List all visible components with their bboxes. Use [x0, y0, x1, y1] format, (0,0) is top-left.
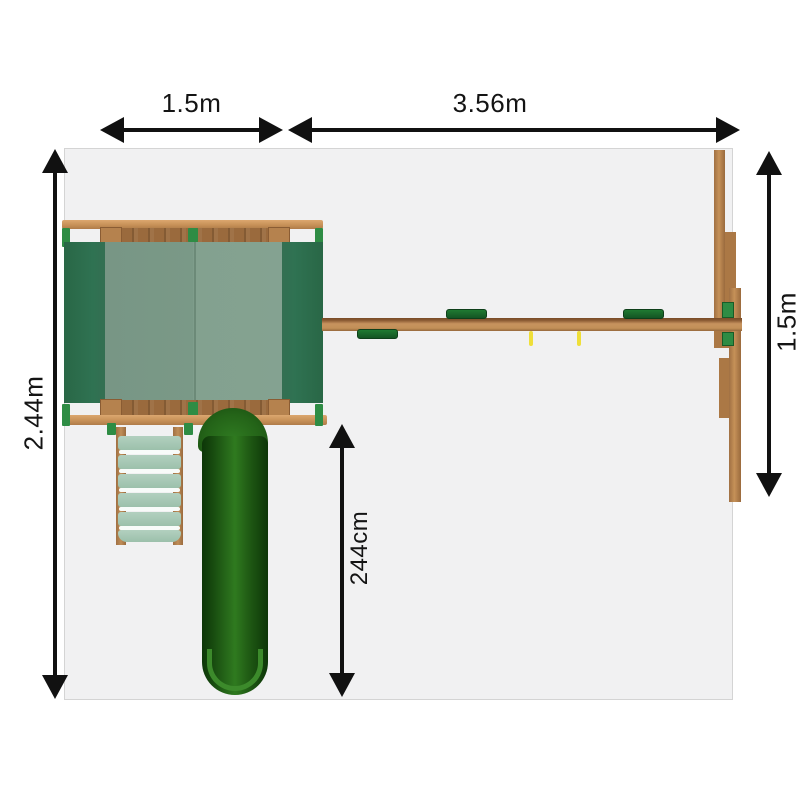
- arrow-head-right-icon: [716, 117, 740, 143]
- canopy-side-panel-right: [282, 242, 323, 403]
- dimension-label-width-right: 3.56m: [410, 88, 570, 119]
- aframe-bracket-top: [722, 302, 734, 318]
- canopy-side-panel-left: [64, 242, 105, 403]
- arrow-line: [118, 128, 265, 132]
- swing-rope: [529, 331, 533, 346]
- ladder-step-edge: [119, 488, 180, 492]
- playset-dimension-diagram: 1.5m 3.56m 2.44m 1.5m 244cm: [0, 0, 800, 800]
- tower-bottom-center-post: [188, 402, 198, 416]
- arrow-head-right-icon: [259, 117, 283, 143]
- dimension-label-slide-length: 244cm: [346, 511, 374, 586]
- aframe-bracket-bottom: [722, 332, 734, 346]
- arrow-line: [767, 169, 771, 479]
- dimension-arrow-width-left: [100, 117, 283, 143]
- tower-top-center-post: [188, 228, 198, 242]
- arrow-head-down-icon: [42, 675, 68, 699]
- ladder-step: [118, 493, 181, 507]
- ladder-step-bottom: [118, 530, 181, 542]
- ladder-step-edge: [119, 469, 180, 473]
- ladder-step-edge: [119, 507, 180, 511]
- arrow-head-down-icon: [329, 673, 355, 697]
- ladder-step-edge: [119, 450, 180, 454]
- swing-rope: [577, 331, 581, 346]
- swing-seat: [446, 309, 487, 319]
- tower-bottom-plank: [62, 415, 327, 425]
- arrow-head-down-icon: [756, 473, 782, 497]
- slide-tube: [202, 436, 268, 695]
- dimension-arrow-width-right: [288, 117, 740, 143]
- canopy-roof-seam: [194, 242, 196, 403]
- arrow-line: [306, 128, 722, 132]
- dimension-label-aframe-depth: 1.5m: [772, 292, 800, 352]
- ladder-step: [118, 455, 181, 469]
- dimension-label-width-left: 1.5m: [100, 88, 283, 119]
- tower-bottom-post-right: [315, 404, 323, 426]
- canopy-roof-center: [105, 242, 282, 403]
- slide-exit-rim: [207, 649, 263, 691]
- ladder-hinge-left: [107, 423, 116, 435]
- ladder-step: [118, 474, 181, 488]
- ladder-step: [118, 512, 181, 526]
- ladder-hinge-right: [184, 423, 193, 435]
- arrow-line: [340, 442, 344, 679]
- swing-seat: [623, 309, 664, 319]
- swing-seat: [357, 329, 398, 339]
- dimension-label-depth-left: 2.44m: [19, 376, 50, 451]
- ladder-step: [118, 436, 181, 450]
- arrow-line: [53, 167, 57, 681]
